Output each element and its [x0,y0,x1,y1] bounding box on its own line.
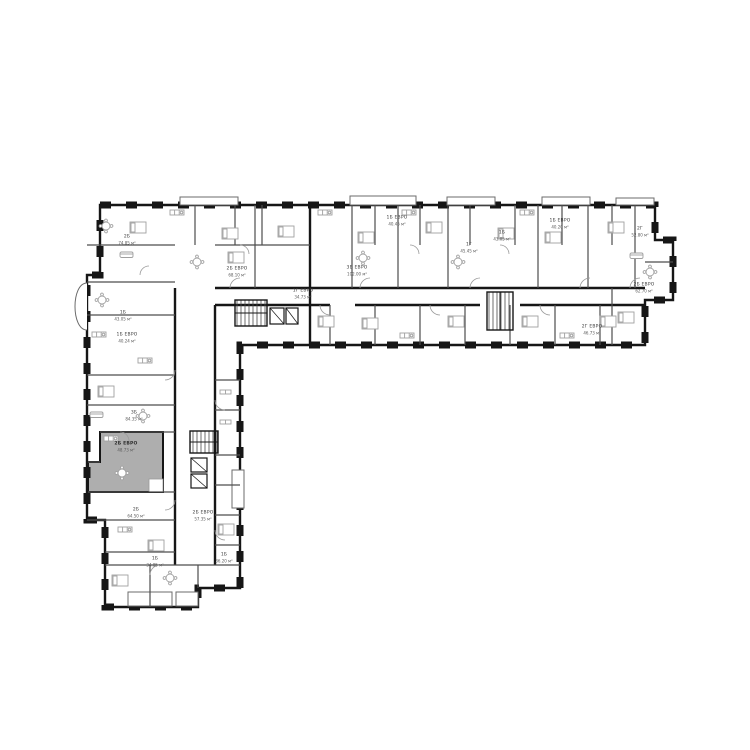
unit-label[interactable]: 1Б34.85 м² [146,557,163,568]
unit-label[interactable]: 2Г52.80 м² [631,227,648,238]
unit-label[interactable]: 1Б36.20 м² [215,553,232,564]
unit-type: 1Б ЕВРО [117,333,138,339]
unit-area: 84.35 м² [125,416,142,421]
unit-area: 40.20 м² [550,224,571,229]
unit-area: 102.00 м² [347,271,368,276]
unit-label[interactable]: 2Б74.85 м² [118,235,135,246]
unit-label[interactable]: 1Г ЕВРО34.73 м² [293,289,314,300]
unit-type: 2Г ЕВРО [582,325,603,331]
unit-label[interactable]: 3Б ЕВРО102.00 м² [347,266,368,277]
unit-label[interactable]: 1Б43.05 м² [114,311,131,322]
unit-area: 68.10 м² [227,272,248,277]
unit-label[interactable]: 2Б ЕВРО62.70 м² [634,283,655,294]
unit-label[interactable]: 1Б ЕВРО40.24 м² [117,333,138,344]
selected-unit-label[interactable]: 2Б ЕВРО48.73 м² [114,442,137,453]
elevators [191,308,298,488]
unit-type: 1Б ЕВРО [550,219,571,225]
unit-area: 74.85 м² [118,240,135,245]
unit-area: 34.85 м² [146,562,163,567]
unit-type: 2Б ЕВРО [227,267,248,273]
unit-label[interactable]: 3Б84.35 м² [125,411,142,422]
unit-area: 62.70 м² [634,288,655,293]
unit-area: 45.45 м² [460,248,477,253]
unit-type: 2Б ЕВРО [114,442,137,448]
selected-unit-bathroom [149,479,163,492]
unit-area: 40.24 м² [117,338,138,343]
unit-label[interactable]: 1Б43.05 м² [493,231,510,242]
unit-type: 1Г ЕВРО [293,289,314,295]
corridor-walls [175,205,645,565]
unit-area: 46.73 м² [582,330,603,335]
unit-type: 1Б ЕВРО [387,216,408,222]
unit-area: 43.05 м² [114,316,131,321]
unit-type: 2Б ЕВРО [634,283,655,289]
unit-area: 64.50 м² [127,513,144,518]
unit-label[interactable]: 2Г ЕВРО46.73 м² [582,325,603,336]
unit-area: 57.35 м² [193,516,214,521]
unit-area: 34.73 м² [293,294,314,299]
unit-label[interactable]: 1Г45.45 м² [460,243,477,254]
unit-area: 36.20 м² [215,558,232,563]
unit-label[interactable]: 2Б ЕВРО57.35 м² [193,511,214,522]
door-arcs [120,245,640,575]
floor-plan-page: 2Б74.85 м²2Б ЕВРО68.10 м²1Б43.05 м²1Б ЕВ… [0,0,750,750]
unit-area: 48.73 м² [114,447,137,452]
unit-label[interactable]: 1Б ЕВРО40.45 м² [387,216,408,227]
unit-label[interactable]: 2Б ЕВРО68.10 м² [227,267,248,278]
rounded-balcony [75,283,87,330]
unit-label[interactable]: 1Б ЕВРО40.20 м² [550,219,571,230]
unit-area: 40.45 м² [387,221,408,226]
unit-area: 43.05 м² [493,236,510,241]
unit-type: 2Б ЕВРО [193,511,214,517]
floor-plan [0,0,750,750]
unit-type: 3Б ЕВРО [347,266,368,272]
balcony [176,592,198,606]
unit-area: 52.80 м² [631,232,648,237]
unit-label[interactable]: 2Б64.50 м² [127,508,144,519]
